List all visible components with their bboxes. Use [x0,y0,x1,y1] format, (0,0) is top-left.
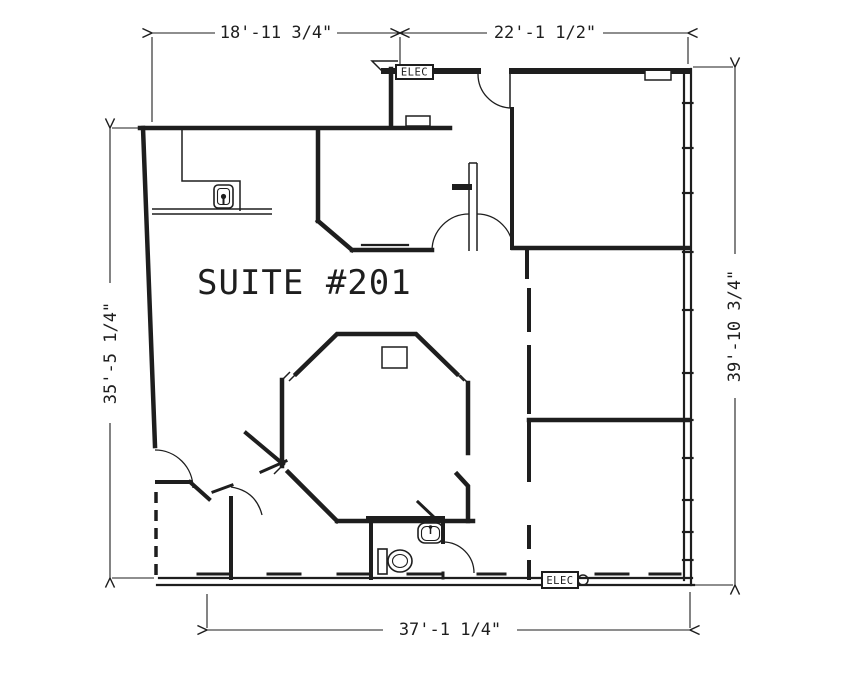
door-leaf-bl [213,485,232,492]
counter-top-left [152,209,272,214]
sink-icon [418,523,443,543]
wall-divider-angled [318,221,352,250]
dimension-bottom: 37'-1 1/4" [207,592,690,640]
dimension-top-right: 22'-1 1/2" [400,23,688,64]
elec-label-bottom: ELEC [546,575,573,587]
suite-title: SUITE #201 [197,263,412,303]
dimension-top-left: 18'-11 3/4" [152,23,400,122]
dim-label-top-left: 18'-11 3/4" [220,23,333,43]
fountain-icon [406,116,430,126]
octagon-jamb-ticks [274,372,468,474]
dim-label-right: 39'-10 3/4" [725,270,745,383]
elec-conduit-icon [578,575,588,585]
exterior-walls [140,61,694,585]
wall-bl-b [190,482,209,499]
octagon-room [274,334,473,521]
electrical-panel-top: ELEC [396,65,433,79]
elec-label-top: ELEC [401,67,428,79]
dim-label-top-right: 22'-1 1/2" [494,23,596,43]
door-arc-double-right [477,214,513,250]
bathroom [368,518,474,578]
wall-bl-diagonal [246,433,283,464]
floorplan-sheet: ELEC ELEC SUITE #201 18'-11 3/4" 22'-1 1… [0,0,863,678]
dim-label-bottom: 37'-1 1/4" [399,620,501,640]
toilet-icon [378,549,412,574]
wall-topleft-room [182,130,240,211]
door-mullion [469,163,477,251]
floor-plan-svg: ELEC ELEC SUITE #201 18'-11 3/4" 22'-1 1… [0,0,863,678]
ceiling-fixture-icon [382,347,407,368]
outlet-icon [214,185,233,208]
door-arc-top-entry [478,74,510,108]
octagon-bl-diagonal [288,472,337,521]
dimension-right: 39'-10 3/4" [693,67,745,585]
wall-notch [645,71,671,80]
door-arc-bathroom [443,542,474,573]
octagon-top-walls [296,334,457,374]
octagon-right-lower [457,474,468,521]
dim-label-left: 35'-5 1/4" [101,302,121,404]
wall-left [143,128,155,446]
door-arc-bl [231,487,262,515]
door-arc-double-left [432,214,469,251]
